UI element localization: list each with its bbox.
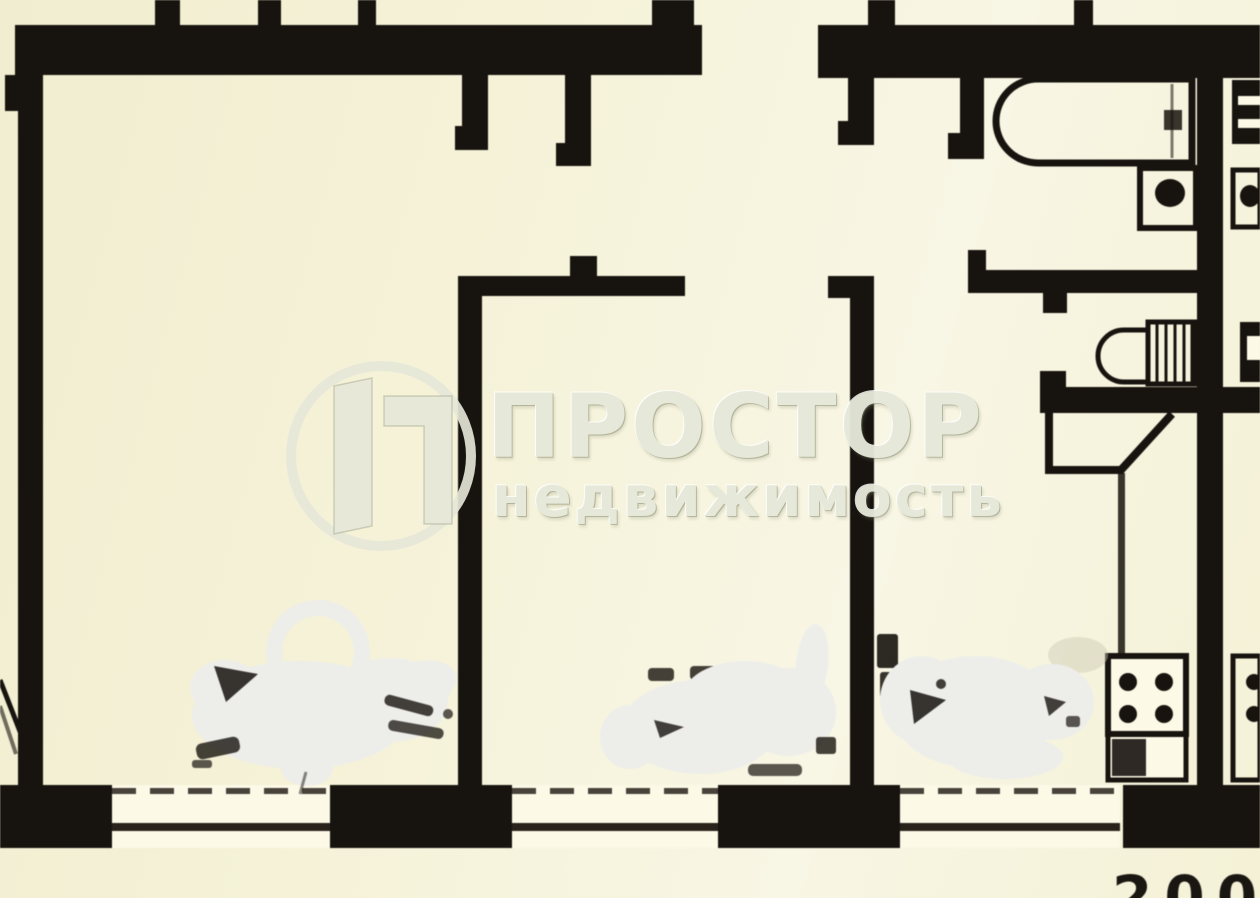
- stove-burner: [1119, 673, 1137, 691]
- eraser-blob: [683, 661, 807, 733]
- stove-burner: [1155, 673, 1173, 691]
- wall-segment: [462, 73, 488, 130]
- bathtub-drain: [1164, 110, 1182, 130]
- eraser-blob: [947, 735, 1063, 779]
- wall-segment: [868, 0, 895, 27]
- wall-segment: [1123, 785, 1260, 848]
- wall-segment: [458, 276, 685, 296]
- partial-dimension-label: 200: [1112, 868, 1260, 898]
- window-opening: [112, 785, 330, 848]
- wall-segment: [358, 0, 376, 27]
- wall-segment: [1197, 76, 1223, 787]
- middle-room-window: [512, 785, 718, 848]
- living-room-window: [112, 785, 330, 848]
- wall-segment: [1040, 387, 1260, 413]
- stove-burner: [1119, 705, 1137, 723]
- label-remnant: [443, 709, 453, 719]
- label-remnant: [192, 760, 212, 768]
- label-remnant: [816, 737, 836, 754]
- wall-segment: [155, 0, 180, 27]
- erased-label-living-room: [190, 608, 464, 794]
- kitchen-vent-icon: [1049, 411, 1172, 470]
- stove-burner: [1155, 705, 1173, 723]
- kitchen-window: [900, 785, 1120, 848]
- bathtub-icon: [996, 79, 1192, 163]
- windows: [112, 785, 1120, 848]
- erased-label-middle-room: [600, 623, 836, 776]
- adjacent-toilet-slit: [1247, 336, 1260, 360]
- window-opening: [900, 785, 1120, 848]
- door-jamb: [948, 133, 984, 159]
- door-jamb: [1043, 293, 1067, 313]
- erased-label-kitchen: [877, 634, 1108, 779]
- floor-plan-drawing: [0, 0, 1260, 898]
- wall-segment: [15, 25, 702, 75]
- eraser-blob: [281, 750, 333, 786]
- wall-segment: [652, 0, 694, 27]
- wall-segment: [1074, 0, 1093, 27]
- window-opening: [512, 785, 718, 848]
- washbasin-bowl: [1155, 179, 1185, 207]
- wall-segment: [458, 276, 482, 787]
- label-remnant: [648, 668, 674, 681]
- adjacent-unit-fixtures: [1232, 80, 1260, 780]
- wall-segment: [258, 0, 281, 27]
- door-jamb: [1040, 371, 1066, 387]
- door-jamb: [455, 126, 488, 150]
- adjacent-stove-burner: [1246, 706, 1260, 722]
- adjacent-fixture-slit: [1238, 96, 1260, 105]
- wall-segment: [0, 785, 112, 848]
- label-remnant: [1066, 716, 1080, 727]
- wall-segment: [968, 250, 986, 293]
- label-remnant: [877, 634, 898, 668]
- label-remnant: [936, 679, 946, 689]
- door-jamb: [838, 121, 874, 145]
- wall-segment: [960, 73, 984, 137]
- stove-oven-door: [1112, 739, 1146, 776]
- wall-segment: [5, 75, 40, 111]
- adjacent-washbasin-bowl: [1240, 185, 1260, 207]
- wall-segment: [818, 25, 1260, 78]
- adjacent-fixture-slit: [1238, 119, 1260, 128]
- adjacent-fixture: [1232, 80, 1260, 144]
- toilet-icon: [1098, 330, 1150, 382]
- wall-segment: [850, 276, 874, 787]
- wall-segment: [18, 73, 43, 787]
- label-remnant: [748, 764, 802, 776]
- adjacent-stove-burner: [1246, 674, 1260, 690]
- door-jamb: [570, 256, 597, 278]
- counter-edge: [1118, 473, 1125, 655]
- eraser-blob: [600, 705, 660, 769]
- wall-segment: [330, 785, 512, 848]
- wall-segment: [718, 785, 900, 848]
- toilet-cistern: [1148, 322, 1196, 384]
- wall-segment: [985, 270, 1197, 293]
- toilet-cistern-hatch: [1157, 324, 1192, 382]
- door-jamb: [556, 143, 591, 166]
- floor-plan-page: ПРОСТОР недвижимость 200: [0, 0, 1260, 898]
- wall-segment: [565, 73, 591, 147]
